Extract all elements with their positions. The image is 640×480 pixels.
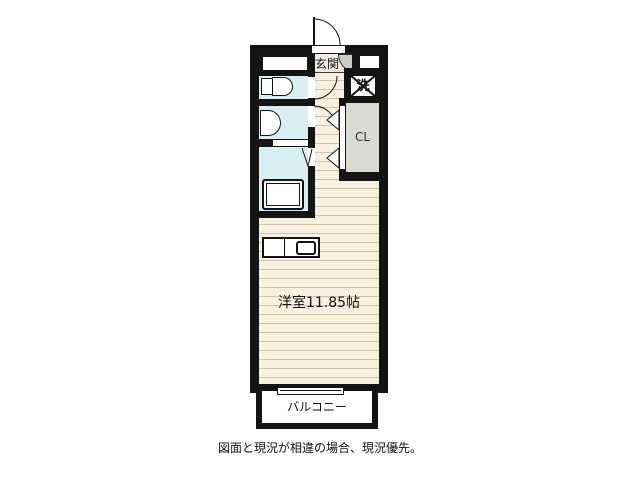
washer-label: 洗 xyxy=(351,78,375,94)
door-symbols xyxy=(0,0,640,480)
disclaimer-text: 図面と現況が相違の場合、現況優先。 xyxy=(0,442,640,454)
floor-plan: 玄関 洗 CL 洋室11.85帖 バルコニー xyxy=(0,0,640,480)
